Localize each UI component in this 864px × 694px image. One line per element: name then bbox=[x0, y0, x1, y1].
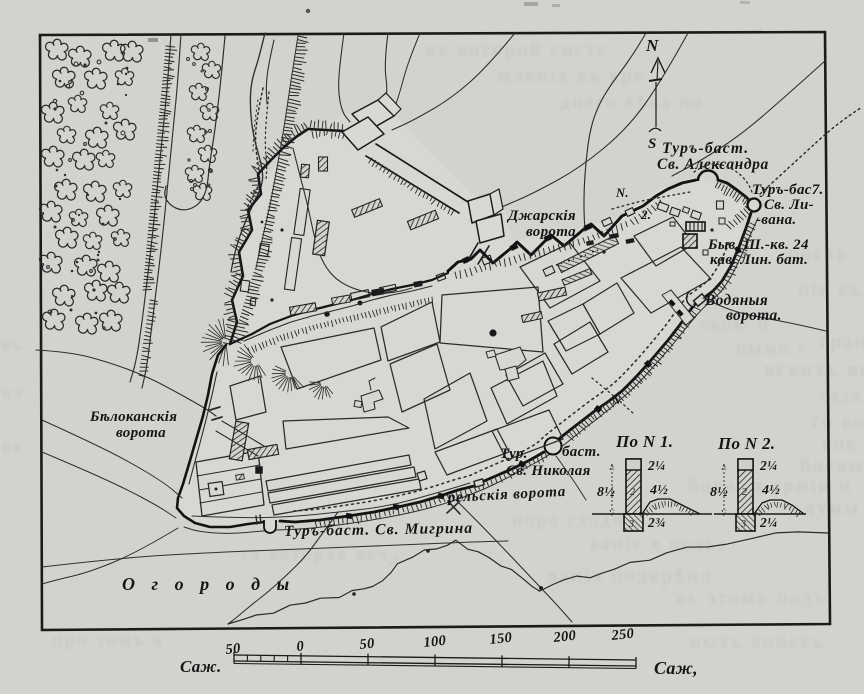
svg-text:2¼: 2¼ bbox=[759, 515, 777, 530]
svg-text:Саж,: Саж, bbox=[654, 658, 698, 678]
svg-text:Туръ-баст.: Туръ-баст. bbox=[662, 140, 749, 157]
svg-text:Тур.: Тур. bbox=[500, 446, 528, 462]
svg-text:ваніе я польз: ваніе я польз bbox=[590, 534, 727, 555]
svg-text:прн томъ я: прн томъ я bbox=[52, 630, 164, 651]
svg-text:Св. Николая: Св. Николая bbox=[506, 463, 591, 479]
svg-text:ворота: ворота bbox=[116, 425, 166, 441]
svg-text:думы в: думы в bbox=[804, 497, 864, 519]
svg-text:нора сходн: нора сходн bbox=[512, 510, 625, 531]
svg-text:на: на bbox=[2, 382, 25, 402]
svg-text:S: S bbox=[648, 136, 657, 152]
svg-text:-вана.: -вана. bbox=[756, 212, 796, 228]
svg-text:Св. Ли-: Св. Ли- bbox=[764, 197, 814, 213]
svg-text:2¼: 2¼ bbox=[759, 458, 777, 473]
svg-text:По N 2.: По N 2. bbox=[717, 434, 775, 453]
svg-text:4½: 4½ bbox=[761, 483, 780, 498]
svg-text:4½: 4½ bbox=[649, 483, 668, 498]
svg-text:та которая вечر: та которая вечر bbox=[240, 544, 399, 565]
svg-text:200: 200 bbox=[552, 628, 577, 646]
svg-text:2: 2 bbox=[630, 487, 635, 498]
svg-text:50: 50 bbox=[225, 640, 242, 657]
svg-text:3: 3 bbox=[628, 519, 634, 530]
svg-text:го вой: го вой bbox=[812, 411, 864, 433]
svg-text:N: N bbox=[645, 36, 659, 55]
svg-text:N.: N. bbox=[615, 186, 629, 200]
svg-text:дняго вѣка по: дняго вѣка по bbox=[560, 92, 704, 113]
svg-text:скія по: скія по bbox=[820, 385, 864, 407]
svg-text:ворота: ворота bbox=[526, 224, 576, 240]
svg-text:ворота.: ворота. bbox=[726, 307, 782, 324]
svg-text:Туръ-бас7.: Туръ-бас7. bbox=[752, 182, 824, 198]
svg-text:N: N bbox=[611, 393, 622, 407]
svg-text:150: 150 bbox=[489, 630, 513, 648]
svg-text:ванія подкрѣпл: ванія подкрѣпл bbox=[548, 565, 713, 587]
svg-text:Бѣлоканскія: Бѣлоканскія bbox=[89, 409, 177, 425]
svg-text:ніе въ: ніе въ bbox=[798, 279, 862, 301]
svg-text:боевыхъ: боевыхъ bbox=[800, 455, 864, 477]
svg-text:8½: 8½ bbox=[597, 485, 615, 500]
svg-text:По N 1.: По N 1. bbox=[615, 432, 673, 451]
svg-text:въ: въ bbox=[2, 436, 24, 456]
svg-text:Быв. Ш.-кв. 24: Быв. Ш.-кв. 24 bbox=[707, 237, 809, 253]
svg-text:ныхъ войскъ: ныхъ войскъ bbox=[690, 631, 825, 653]
svg-text:въ которой снсте: въ которой снсте bbox=[426, 39, 609, 61]
svg-text:8½: 8½ bbox=[710, 485, 728, 500]
svg-text:2¾: 2¾ bbox=[647, 515, 665, 530]
svg-text:3: 3 bbox=[740, 519, 746, 530]
svg-text:2.: 2. bbox=[640, 207, 651, 222]
svg-text:100: 100 bbox=[423, 633, 447, 651]
svg-text:Саж.: Саж. bbox=[180, 657, 222, 676]
svg-text:О г о р о д ы: О г о р о д ы bbox=[122, 574, 295, 594]
svg-text:баст.: баст. bbox=[562, 444, 601, 460]
svg-text:ными г: ными г bbox=[736, 338, 809, 359]
svg-text:въ: въ bbox=[2, 334, 24, 354]
svg-text:вскнхъ вой: вскнхъ вой bbox=[764, 357, 864, 381]
svg-text:Туръ-баст. Св. Мигрина: Туръ-баст. Св. Мигрина bbox=[284, 520, 474, 540]
svg-text:250: 250 bbox=[610, 626, 635, 644]
svg-text:Джарскія: Джарскія bbox=[506, 208, 576, 224]
svg-text:2: 2 bbox=[742, 487, 747, 498]
svg-text:50: 50 bbox=[359, 635, 376, 652]
svg-text:кав. Лин. бат.: кав. Лин. бат. bbox=[710, 252, 808, 268]
svg-text:вь этомъ подъ: вь этомъ подъ bbox=[676, 587, 827, 609]
svg-text:2¼: 2¼ bbox=[647, 458, 665, 473]
